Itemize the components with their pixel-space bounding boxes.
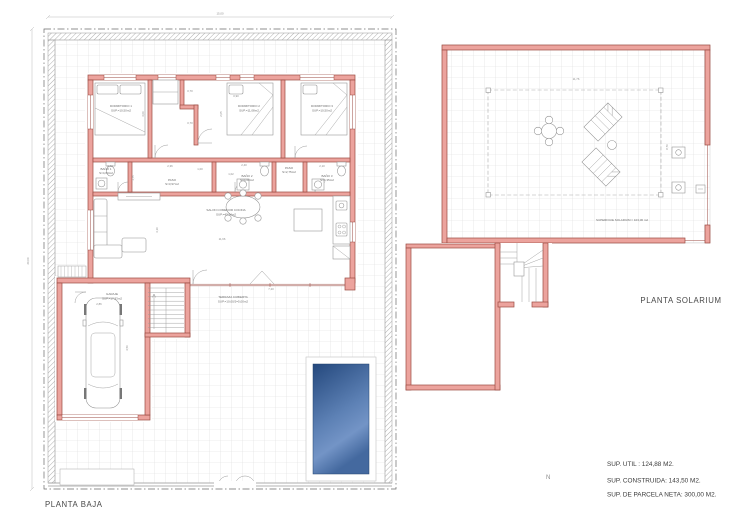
pool-water [313,364,369,474]
solarium-floor-grid [442,45,710,243]
roof-block [404,243,552,393]
dim-garaje-w: 2,86 [96,302,102,306]
porch-steps [58,266,86,277]
pool [306,357,376,481]
title-planta-solarium: PLANTA SOLARIUM [640,296,721,305]
dim-5: 1,02 [228,172,234,176]
floorplan-canvas: 15,00 20,00 [0,0,756,528]
summary-util: SUP. UTIL : 124,88 M2. [607,461,674,468]
planta-baja-plan: 15,00 20,00 [26,12,396,492]
label-bano3-area: S=4,35m2 [320,178,334,182]
label-dormitorio2-area: SUP.=11,08m2 [239,108,259,112]
label-bano2-area: S=4,60m2 [240,178,254,182]
surface-summary: SUP. UTIL : 124,88 M2. SUP. CONSTRUIDA: … [607,461,717,499]
dim-parcel-height: 20,00 [26,257,30,264]
label-bano1-area: S=4,60m2 [99,171,113,175]
dim-parcel-width: 15,00 [217,12,224,16]
label-paso1-area: S=3,97m2 [165,182,179,186]
summary-construida: SUP. CONSTRUIDA: 143,50 M2. [607,478,701,485]
label-garaje-area: SUP.=17,93m2 [102,296,122,300]
label-dormitorio3-area: SUP.=10,50m2 [312,108,332,112]
label-terraza-name: TERRAZA CUBIERTA [218,295,248,299]
dim-0: 2,62 [107,164,113,168]
side-table [608,141,617,150]
dim-4: 2,40 [241,163,247,167]
dim-11: 0,90 [233,94,239,98]
dim-salon-w: 11,66 [219,237,226,241]
dim-3: 1,00 [197,167,203,171]
dim-10: 0,70 [187,121,193,125]
label-garaje-name: GARAJE [106,292,118,296]
dim-8: 2,05 [219,111,223,117]
dim-garaje-h: 4,56 [125,345,129,351]
solarium-surface-label: SUPERFICIE SOLARIUM = 103,06 m2 [596,218,648,222]
label-paso2-area: S=2,75m2 [282,170,296,174]
label-dormitorio1-area: SUP.=10,50m2 [111,108,131,112]
title-planta-baja: PLANTA BAJA [45,500,103,509]
dim-terraza-w: 7,20 [268,287,274,291]
dining-table [225,190,261,224]
dim-salon-h: 3,10 [155,227,159,233]
label-salon-name: SALON COMEDOR COCINA [206,208,245,212]
label-terraza-area: SUP.=10,00/2=5,00m2 [218,299,248,303]
dim-2: 2,36 [167,164,173,168]
coffee-table [122,238,146,252]
solarium-dim-width: 11,76 [573,77,580,81]
planta-solarium-plan: SUPERFICIE SOLARIUM = 103,06 m2 11,76 8,… [404,45,710,393]
solarium-dim-height: 8,76 [665,144,669,150]
summary-parcela: SUP. DE PARCELA NETA: 300,00 M2. [607,492,717,499]
label-salon-area: SUP.=43,14m2 [216,212,236,216]
wardrobe [153,80,178,104]
dim-9: 0,70 [187,89,193,93]
north-indicator: N [546,475,550,481]
dim-1: 1,75 [131,175,135,181]
car [83,298,123,408]
tv-unit [118,193,160,200]
kitchen-island [294,209,322,231]
dim-7: 3,06 [141,111,145,117]
dim-6: 2,10 [319,164,325,168]
kitchen-counter [333,196,350,259]
